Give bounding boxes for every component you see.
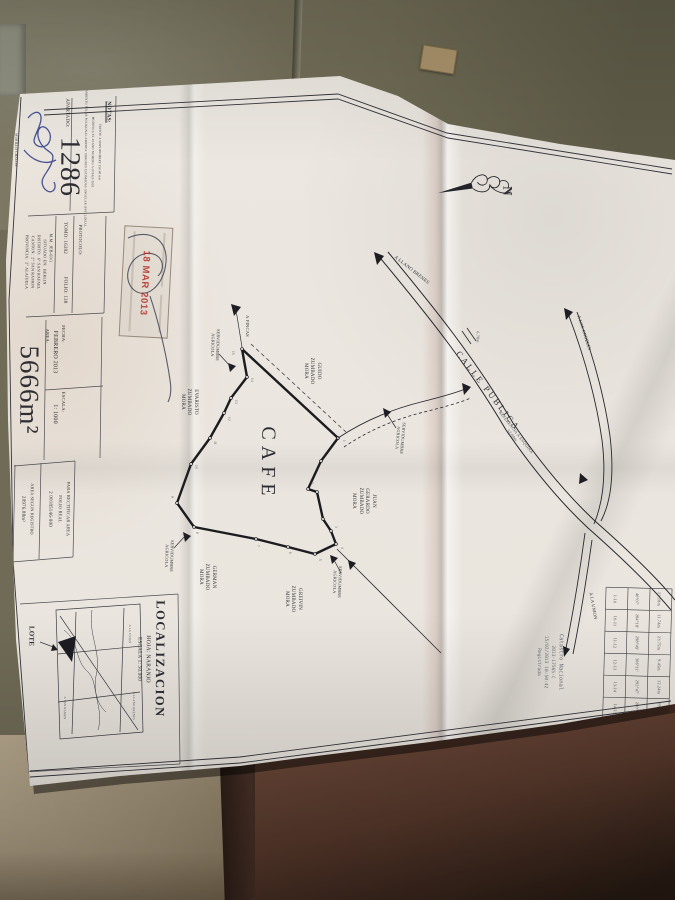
apartado-number: 1286 [51,137,88,197]
map-owner-labels-item: EVARISTO ZUMBADO MORA [178,389,198,416]
boundary-station-numbers-item: 8 [195,532,200,534]
derrotero-table-cells-item: 23.75m [656,636,662,650]
tomo-value: TOMO: 16392 [61,222,68,254]
arrow-llano-brenes [374,252,384,265]
boundary-station-numbers-item: 2 [310,482,315,484]
derrotero-table-cells-item: 9.45m [656,659,662,671]
folio-value: FOLIO: 138 [61,277,68,304]
arrow-road-fork [579,473,588,484]
boundary-station-numbers-item: 6 [288,552,293,554]
map-owner-labels-item: A FINCAS [244,315,250,337]
situado-line: SITUADO EN: BERLIN [42,239,48,284]
derrotero-table-cells-item: 12-13 [612,660,618,671]
boundary-station-numbers-item: 12 [227,417,232,421]
arrow-servidumbre [462,383,471,395]
north-letter: N [499,186,516,196]
escala-label: ESCALA: [60,392,66,413]
derrotero-table-cells-item: 46°07' [634,593,640,605]
derrotero-table-cells-item: 11-12 [612,638,618,649]
surveyor-name: MURILLO CHACON [14,133,19,166]
situado-line: CANTON: 2° SAN RAMON [30,236,36,288]
fabric-tag [419,44,457,74]
boundary-station-numbers-item: 7 [256,545,261,547]
boundary-station-numbers-item: 5 [318,559,323,561]
area-label: AREA: [44,329,50,344]
localizacion-title: LOCALIZACION [151,600,168,717]
boundary-station-numbers-item: 1 [342,440,347,442]
derrotero-table-cells-item: 14-15 [612,704,618,715]
map-owner-labels-item: GUIDO ZUMBADO MORA [301,358,321,385]
digital-stamp-line: 15/02/2013 10:50:42 [542,636,548,689]
derrotero-table-cells-item: 1-10 [612,595,618,604]
map-owner-labels-item: JUAN GERARDO ZUMBADO MORA [350,488,376,515]
digital-stamp-line: 2013-17565-C [549,645,555,678]
apartado-label: APARTADO: [63,98,70,127]
inset-road-labels-item: A SAN RAMON [62,697,66,720]
digital-stamp-line: Registrada [535,648,541,676]
derrotero-table-cells-item: 11.74m [656,614,662,628]
protocolo-label: PROTOCOLO: [77,225,83,256]
inset-road-labels-item: A LLANO BRENES [131,692,135,720]
arrow-serv-diagonal [348,560,356,570]
fecha-label: FECHA: [60,325,66,343]
derrotero-table-cells-item: 298°49' [634,636,640,650]
digital-stamp-line: Catastro Nacional [556,634,564,690]
map-owner-labels-item: SERVIDUMBRE AGRICOLA [209,329,221,361]
arrow-los-angeles [564,308,573,320]
map-owner-labels-item: GREIVIN ZUMBADO MORA [282,586,302,613]
derrotero-table-cells-item: 306°11' [634,658,640,672]
fabric-patch [0,24,26,96]
lote-triangle-marker [58,636,76,662]
notas-title: NOTAS: [104,101,111,123]
fecha-value: FEBRERO 2013 [50,331,58,374]
area-value: 5666m² [11,345,47,434]
inset-road-labels-item: A LA UNION [127,624,131,643]
map-owner-labels-item: SERVIDUMBRE AGRICOLA [331,566,343,598]
boundary-station-numbers-item: 3 [334,526,339,528]
localizacion-hoja: HOJA: NARANJO [143,635,151,683]
escala-value: 1: 1000 [50,404,58,424]
lote-label: LOTE [26,626,35,646]
derrotero-table-cells-item: 22.18m [656,592,662,606]
rectificar-line: PARA RECTIFICAR AREA [65,482,71,537]
situado-line: DISTRITO: 6° SAN RAFAEL [36,235,42,290]
boundary-station-numbers-item: 11 [213,441,218,445]
derrotero-table-cells-item: 13-14 [612,682,618,693]
situado-line: PROVINCIA: 2° ALAJUELA [24,235,30,289]
derrotero-table-cells-item: 284°18' [634,614,640,628]
derrotero-table-cells-item: 292°47' [634,680,640,694]
calle-publica-road [381,252,675,610]
localizacion-escala: ESCALA 1: 50.000 [135,637,142,681]
crossing-measure: 6.78m [475,331,480,342]
notas-line: MODIFICA EL PLANO NUMERO A-970423-1991 [90,117,95,188]
boundary-station-numbers-item: 13 [234,400,239,404]
arrow-la-union [563,646,570,657]
registro-label: AREA SEGUN REGISTRO [29,483,35,535]
boundary-station-numbers-item: 15 [231,351,236,355]
boundary-station-numbers-item: 4 [340,547,345,549]
derrotero-table-cells-item: 12.24m [656,680,662,694]
notas-line: FRENTE A SERVIDUMBRE 250.48 mts [97,124,101,180]
boundary-station-numbers-item: 10 [194,465,199,469]
boundary-station-numbers-item: 14 [250,378,255,382]
map-owner-labels-item: SERVIDUMBRE AGRICOLA [163,540,175,572]
rectificar-line: FOLIO REAL [57,495,63,523]
map-owner-labels-item: GERMAN ZUMBADO MORA [196,564,216,591]
registro-value: 20976.88m² [19,496,26,522]
file-reference: M.M. JEB-03/1 [48,233,54,262]
derrotero-table-cells-item: 10-11 [612,616,618,627]
boundary-station-numbers-item: 9 [170,496,175,498]
rectificar-folio-real: 2 00185146-000 [46,491,53,527]
cafe-label: CAFE [255,426,282,501]
photo-of-survey-document: NOTAS: FRENTE A SERVIDUMBRE 250.48 mts M… [0,0,675,900]
